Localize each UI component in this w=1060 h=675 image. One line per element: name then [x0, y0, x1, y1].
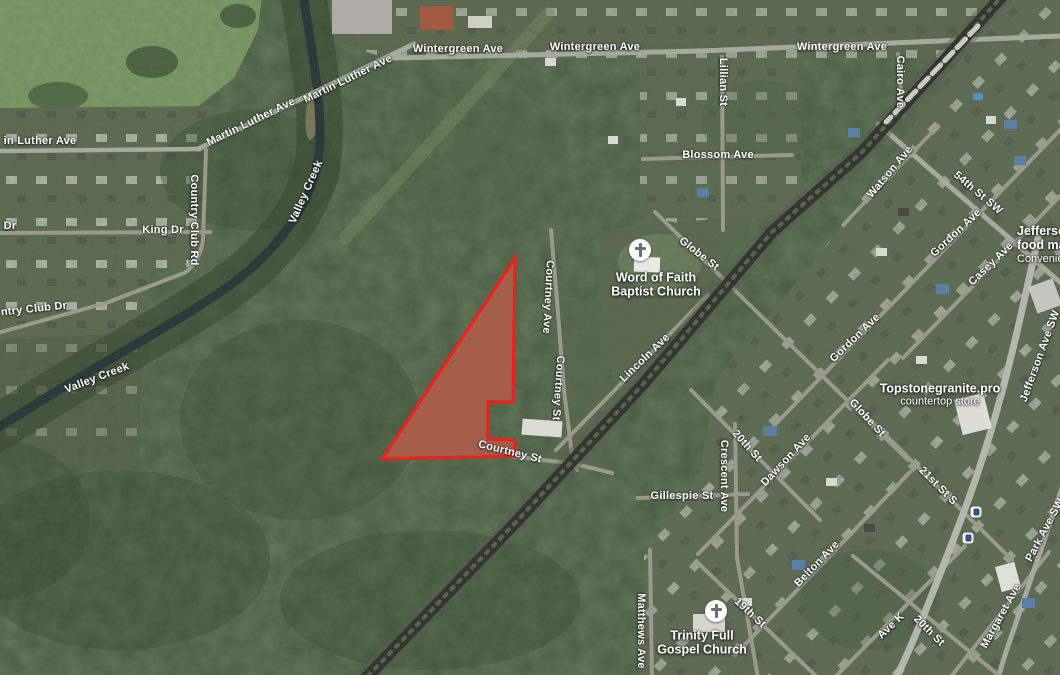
street-label-dawson-ave: Dawson Ave	[759, 431, 814, 488]
street-label-ntry-club-dr: ntry Club Dr	[0, 300, 67, 319]
street-label-courtney-ave: Courtney Ave	[540, 260, 556, 334]
street-label-jefferson-ave-sw: Jefferson Ave SW	[1018, 309, 1060, 404]
poi-label-line: food mart	[1017, 238, 1060, 252]
street-label-country-club-rd: Country Club Rd	[188, 174, 200, 265]
poi-label-line: Word of Faith	[611, 271, 701, 285]
street-label-cairo-ave: Cairo Ave	[894, 56, 906, 109]
street-label-valley-creek-upper: Valley Creek	[287, 159, 326, 226]
street-label-crescent-ave: Crescent Ave	[718, 440, 730, 513]
church-icon-word-of-faith-baptist-church[interactable]	[629, 239, 651, 261]
street-label-globe-st-upper: Globe St	[677, 235, 722, 274]
street-label-gordon-ave-upper: Gordon Ave	[928, 207, 983, 260]
street-label-ave-k: Ave K	[875, 611, 906, 642]
transit-icon-transit-stop-2[interactable]	[963, 533, 974, 544]
poi-label-line: Jefferson	[1017, 224, 1060, 238]
street-label-martin-luther-ave-1: Martin Luther Ave	[205, 95, 297, 148]
poi-label-line: Gospel Church	[657, 643, 747, 657]
street-label-belton-ave: Belton Ave	[792, 539, 842, 590]
street-label-casey-ave: Casey Ave	[966, 240, 1015, 288]
street-label-courtney-st-vertical: Courtney St	[550, 355, 567, 421]
poi-label-line: Baptist Church	[611, 285, 701, 299]
street-label-park-ave-sw: Park Ave SW	[1023, 496, 1060, 563]
poi-label-line: Topstonegranite.pro	[880, 381, 1001, 395]
street-label-21st-st-s: 21st St S	[917, 465, 960, 508]
street-label-blossom-ave: Blossom Ave	[682, 149, 754, 161]
poi-label-trinity-full-gospel-church: Trinity FullGospel Church	[657, 629, 747, 658]
street-label-gordon-ave-mid: Gordon Ave	[828, 311, 883, 365]
street-label-margaret-ave: Margaret Ave	[978, 582, 1023, 651]
street-label-lincoln-ave: Lincoln Ave	[618, 331, 673, 384]
street-label-wintergreen-ave-3: Wintergreen Ave	[797, 41, 887, 53]
street-label-matthews-ave: Matthews Ave	[635, 593, 647, 669]
street-label-valley-creek-lower: Valley Creek	[63, 360, 131, 396]
street-label-20th-st-upper: 20th St	[730, 428, 765, 465]
street-label-courtney-st-diagonal: Courtney St	[477, 438, 543, 465]
poi-label-line: Trinity Full	[657, 629, 747, 643]
map-labels-layer: Wintergreen AveWintergreen AveWintergree…	[0, 0, 1060, 675]
poi-label-line: Convenience	[1017, 253, 1060, 266]
street-label-in-luther-ave: in Luther Ave	[4, 135, 77, 147]
church-icon-trinity-full-gospel-church[interactable]	[705, 600, 727, 622]
street-label-king-dr: King Dr	[142, 224, 183, 236]
street-label-lillian-st: Lillian St	[717, 58, 729, 106]
street-label-martin-luther-ave-2: Martin Luther Ave	[302, 52, 394, 105]
poi-label-jefferson-food-mart: Jeffersonfood martConvenience	[1017, 224, 1060, 265]
poi-label-line: countertop store	[880, 396, 1001, 409]
street-label-20th-st-lower: 20th St	[911, 613, 947, 649]
satellite-map[interactable]: Wintergreen AveWintergreen AveWintergree…	[0, 0, 1060, 675]
street-label-wintergreen-ave-1: Wintergreen Ave	[413, 43, 503, 55]
transit-icon-transit-stop-1[interactable]	[971, 507, 982, 518]
poi-label-topstonegranite-pro: Topstonegranite.procountertop store	[880, 381, 1001, 408]
street-label-watson-ave: Watson Ave	[865, 144, 915, 201]
street-label-gillespie-st: Gillespie St	[651, 490, 714, 502]
poi-label-word-of-faith-baptist-church: Word of FaithBaptist Church	[611, 271, 701, 300]
street-label-wintergreen-ave-2: Wintergreen Ave	[550, 41, 640, 53]
street-label-dr-partial: Dr	[4, 220, 17, 232]
street-label-19th-st: 19th St	[732, 596, 768, 631]
